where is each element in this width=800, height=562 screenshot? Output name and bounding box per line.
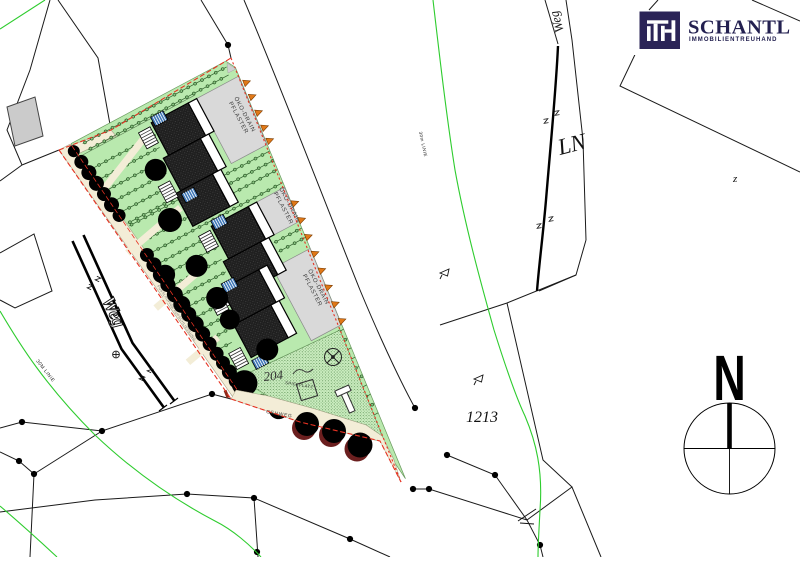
svg-text:SCHANTL: SCHANTL xyxy=(688,17,791,39)
svg-text:1213: 1213 xyxy=(466,409,498,426)
svg-text:z: z xyxy=(732,173,738,185)
svg-text:204: 204 xyxy=(263,367,284,384)
svg-text:IMMOBILIENTREUHAND: IMMOBILIENTREUHAND xyxy=(689,37,778,43)
svg-text:N: N xyxy=(713,342,745,414)
